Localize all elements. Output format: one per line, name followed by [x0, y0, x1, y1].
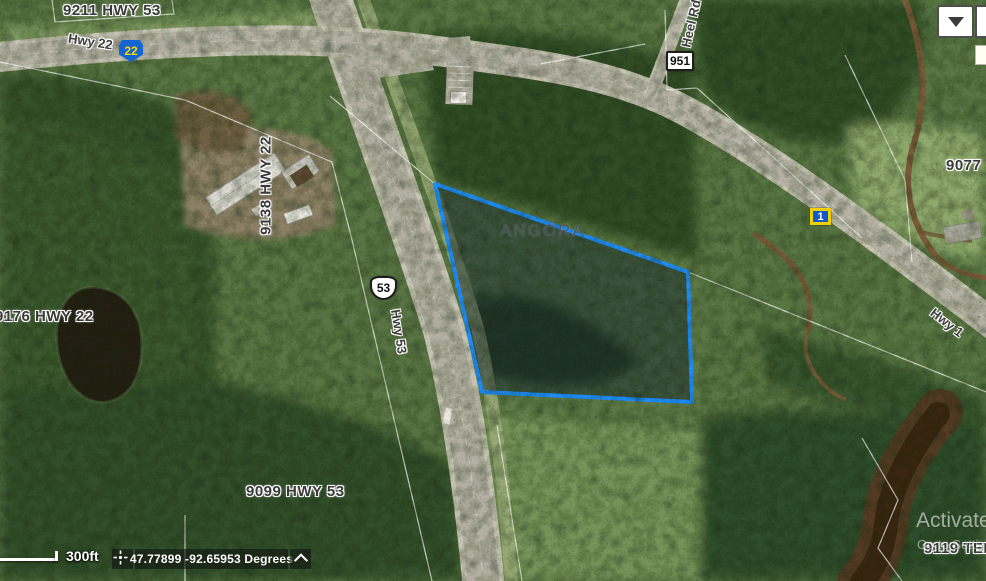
selected-parcel-name-label: ANGORA	[500, 221, 586, 241]
shield-mn-1-number: 1	[817, 211, 823, 223]
crosshair-icon	[112, 549, 129, 566]
scale-label: 300ft	[66, 548, 99, 564]
address-label-9211: 9211 HWY 53	[63, 2, 161, 19]
address-label-9099: 9099 HWY 53	[246, 483, 345, 500]
toolbar-panel-cutoff[interactable]	[975, 5, 986, 38]
texture-overlay-fine	[0, 0, 986, 581]
shield-us-53-number: 53	[377, 281, 390, 295]
coordinates-readout: 47.77899 -92.65953 Degrees	[135, 549, 288, 569]
address-label-9176: 9176 HWY 22	[0, 308, 94, 325]
chevron-up-icon	[293, 553, 307, 567]
activation-watermark-line2: Go to Setti	[917, 537, 978, 552]
scale-bar-end-tick	[55, 551, 58, 561]
toolbar-panel-cutoff-2[interactable]	[975, 45, 986, 65]
shield-mn-22-number: 22	[124, 44, 137, 58]
scale-bar	[0, 558, 57, 561]
address-label-9138: 9138 HWY 22	[258, 130, 275, 242]
shield-county-951-number: 951	[670, 54, 690, 68]
shield-county-951: 951	[666, 51, 694, 71]
aerial-imagery	[0, 0, 986, 581]
collapse-footer-button[interactable]	[290, 549, 311, 569]
dropdown-arrow-icon	[948, 17, 964, 27]
layers-dropdown-button[interactable]	[937, 5, 974, 38]
activation-watermark-line1: Activate	[916, 509, 986, 533]
address-label-9077: 9077	[946, 157, 981, 174]
map-viewport[interactable]: 9211 HWY 53 9138 HWY 22 9176 HWY 22 9099…	[0, 0, 986, 581]
shield-mn-1: 1	[810, 208, 831, 225]
